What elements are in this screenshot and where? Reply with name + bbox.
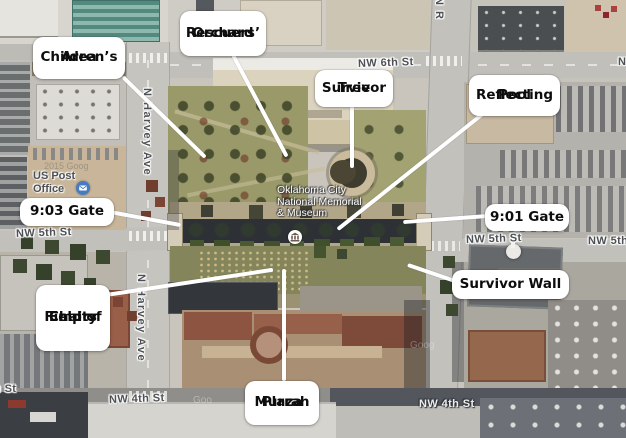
street-label-nw-4th-right: NW 4th St [419,398,475,410]
church-steeple [506,244,521,259]
street-label-right-edge-partial: N [618,56,626,68]
post-office-label: US Post Office [33,170,75,195]
callout-903-gate: 9:03 Gate [20,198,114,226]
street-label-nw-5th-left: NW 5th St [16,226,72,240]
callout-survivor-wall: Survivor Wall [452,270,569,299]
callout-reflecting-pool: Reflecting Pool [469,75,560,116]
callout-murrah-plaza: Murrah Plaza [245,381,319,425]
callout-children-area: Children’s Area [33,37,125,79]
brick-building-se [468,330,546,382]
leader-line-field-of-empty-chairs [106,268,274,297]
street-label-nw-5th-mid: NW 5th St [466,232,522,246]
street-label-nw-6th: NW 6th St [358,56,414,70]
teal-roof-building [72,0,160,42]
street-label-n-robinson-partial: N R [433,0,445,27]
leader-line-903-gate [110,210,182,227]
street-label-nw-5th-right-edge: NW 5th [588,235,626,247]
street-label-nw-4th-left: NW 4th St [109,392,165,406]
annotated-aerial-map: NW 6th St NW 5th St NW 5th St NW 5th NW … [0,0,626,438]
leader-line-rescuers-orchard [231,54,288,158]
callout-rescuers-orchard: Rescuers’ Orchard [180,11,266,56]
callout-901-gate: 9:01 Gate [485,204,569,231]
imagery-watermark: Goo [193,395,212,406]
imagery-watermark: Goog [410,340,434,351]
leader-line-children-area [122,76,207,159]
chairs-field [170,246,426,298]
leader-line-murrah-plaza [282,269,286,381]
callout-survivor-tree: Survivor Tree [315,70,393,107]
leader-line-survivor-tree [350,104,354,168]
callout-field-of-empty-chairs: Field of Empty Chairs [36,285,110,351]
museum-icon [288,230,302,244]
leader-line-901-gate [403,214,488,224]
mail-icon [76,181,90,195]
leader-line-survivor-wall [407,263,456,283]
street-label-nw-4th-partial: h St [0,383,16,395]
murrah-plaza-area [182,310,426,388]
memorial-place-label: Oklahoma City National Memorial & Museum [277,185,362,220]
gate-west-monument [167,213,183,251]
leader-line-reflecting-pool [336,111,485,231]
